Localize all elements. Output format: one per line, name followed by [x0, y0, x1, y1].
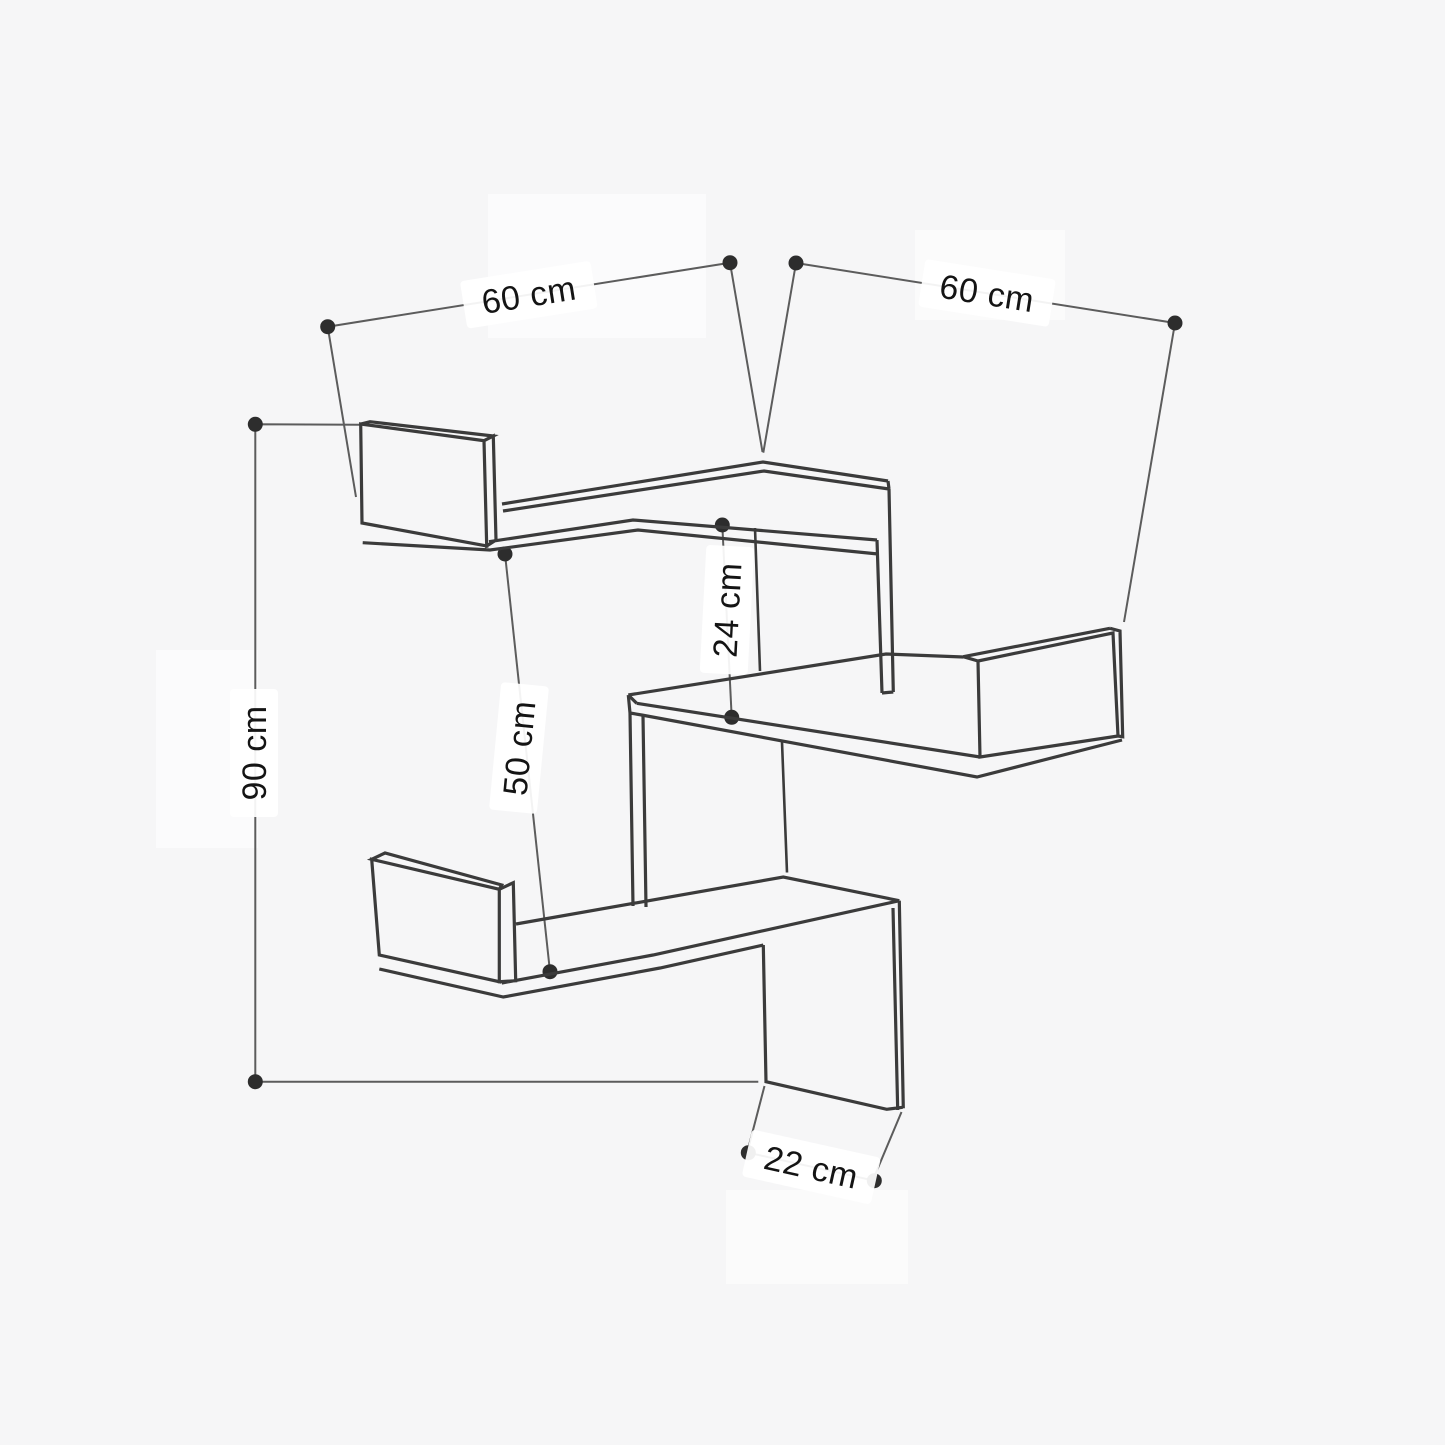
dimension-22cm: 22 cm: [741, 1086, 902, 1205]
background-patches: [156, 194, 1065, 1284]
dimension-label-group: 50 cm: [489, 682, 549, 814]
dimension-endpoint-dot: [715, 518, 730, 533]
dimension-endpoint-dot: [248, 417, 263, 432]
dimension-endpoint-dot: [320, 319, 335, 334]
dimension-endpoint-dot: [789, 256, 804, 271]
dimension-label-group: 90 cm: [230, 689, 278, 817]
dimension-label-group: 24 cm: [700, 545, 755, 675]
dimension-endpoint-dot: [723, 255, 738, 270]
dimension-90cm-label: 90 cm: [236, 705, 274, 800]
dimension-60cm-right: 60 cm: [763, 256, 1182, 623]
dimension-24cm-label: 24 cm: [707, 562, 750, 659]
top-shelf-outline: [361, 422, 894, 693]
dimension-24cm: 24 cm: [700, 518, 755, 725]
wall-corner-lines: [755, 528, 787, 873]
dimension-endpoint-dot: [1168, 316, 1183, 331]
corner-shelf-dimension-diagram: 60 cm 60 cm 24 cm 50 cm: [0, 0, 1445, 1445]
bottom-shelf-outline: [372, 853, 904, 1110]
dimension-drawing-page: 60 cm 60 cm 24 cm 50 cm: [0, 0, 1445, 1445]
dimension-endpoint-dot: [248, 1074, 263, 1089]
background-patch: [726, 1190, 908, 1284]
